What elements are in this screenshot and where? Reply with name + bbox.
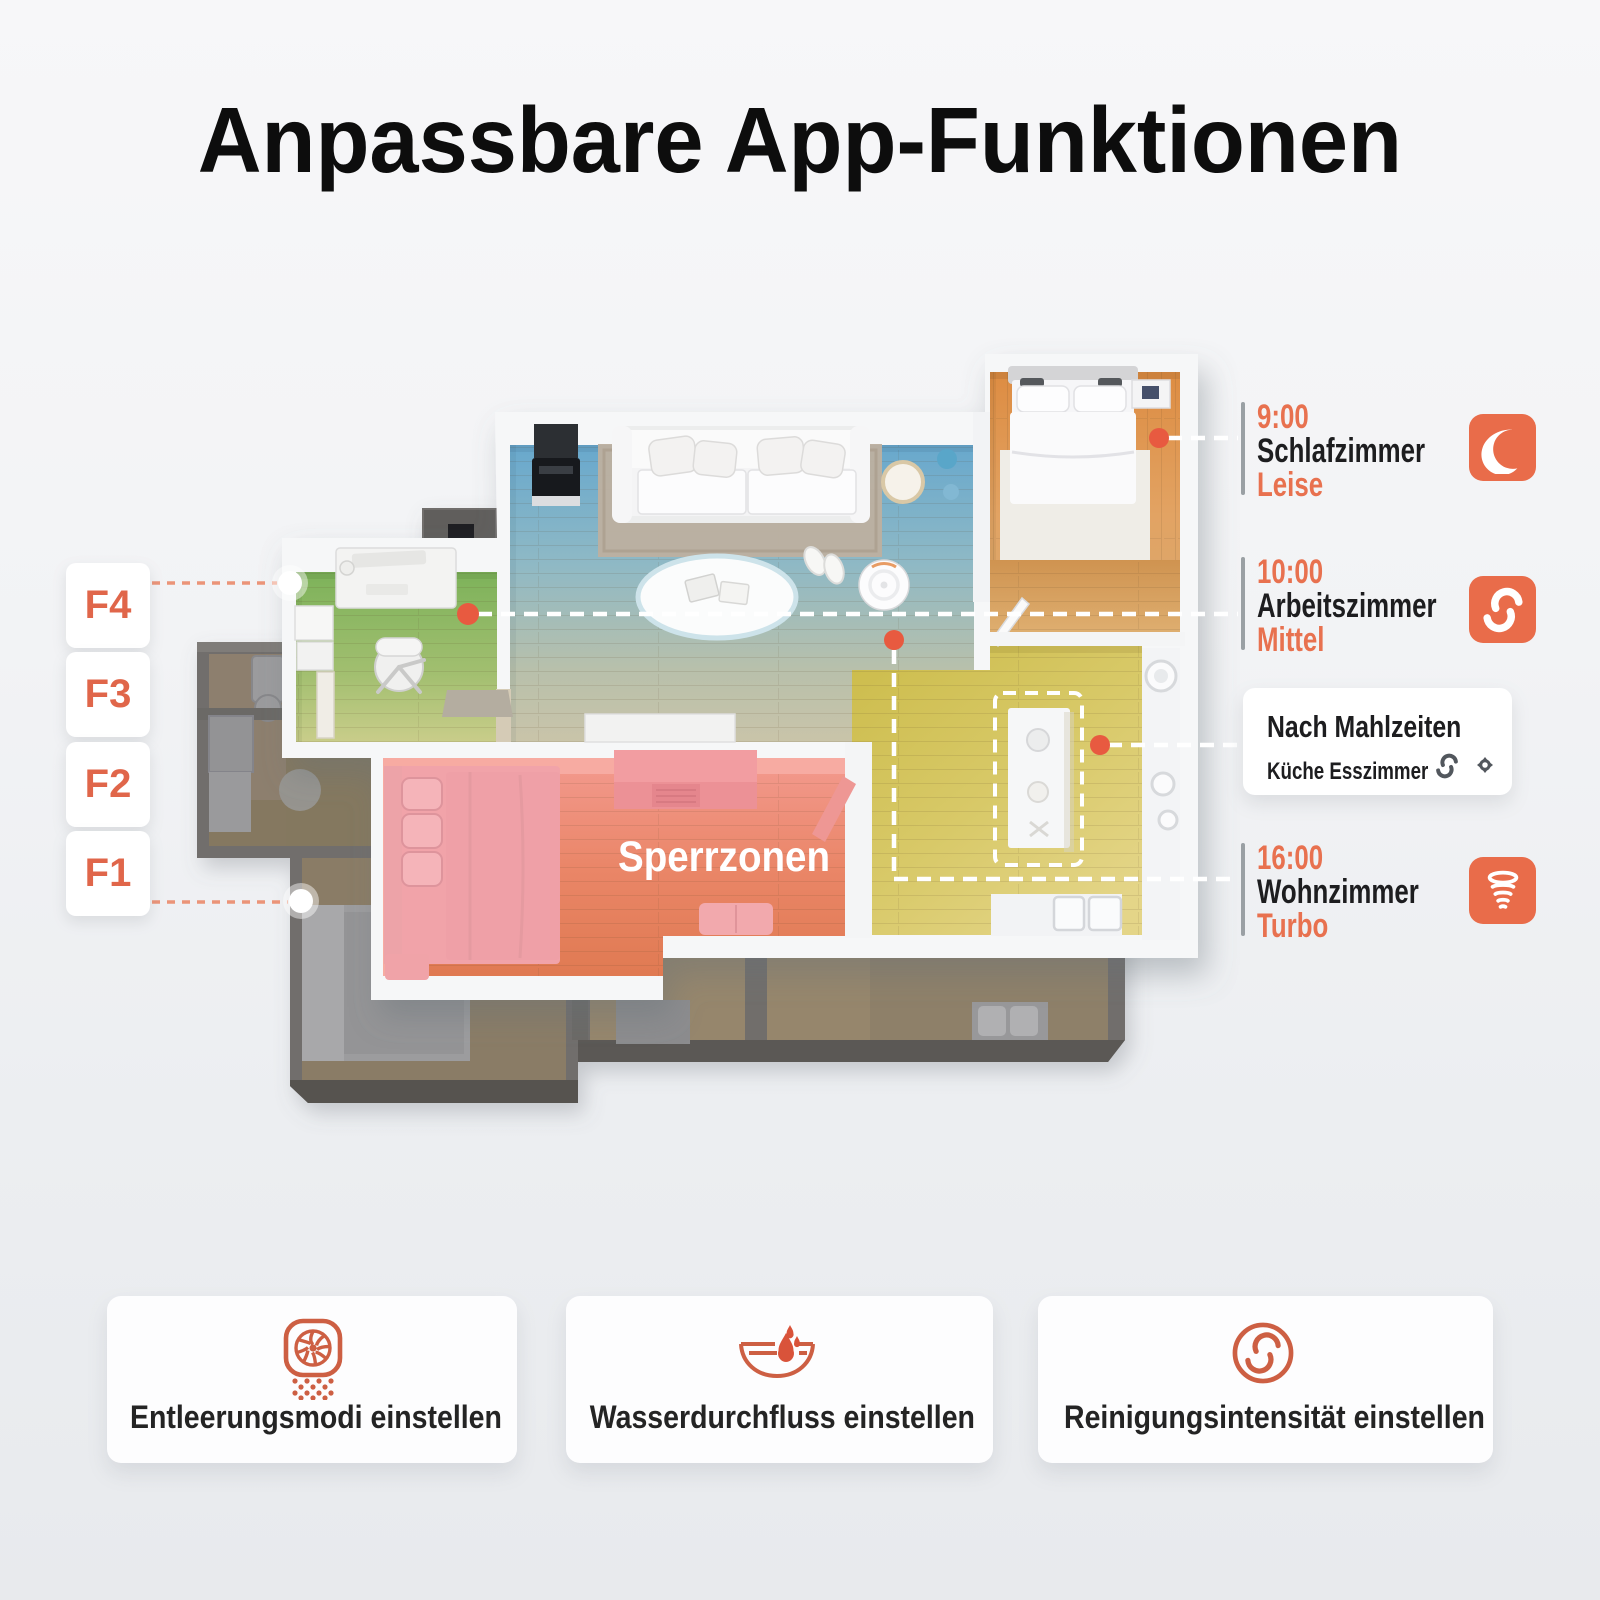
svg-text:Sperrzonen: Sperrzonen xyxy=(618,833,830,881)
